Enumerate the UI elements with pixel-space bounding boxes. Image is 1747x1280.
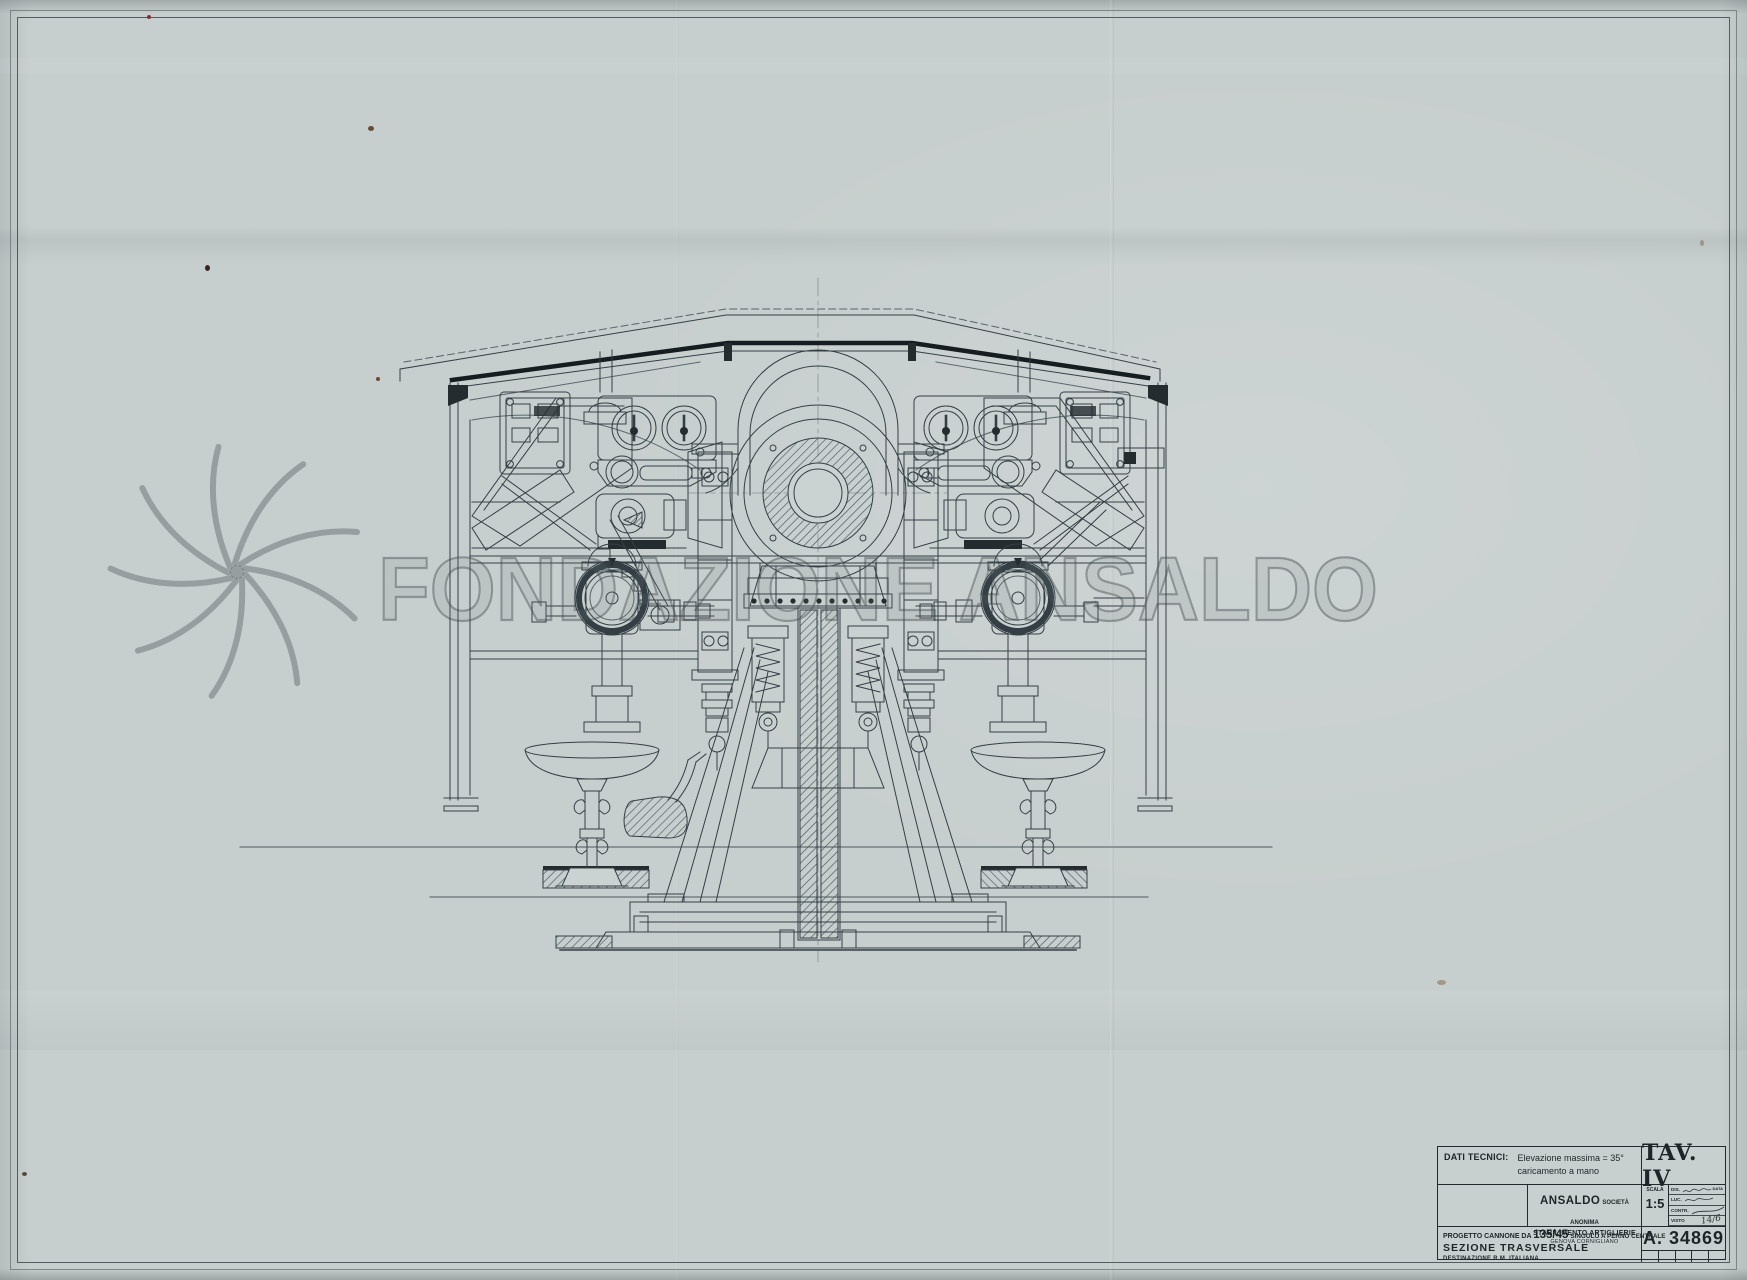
technical-drawing: FONDAZIONE ANSALDO xyxy=(0,0,1747,1280)
signature-scribble xyxy=(1684,1196,1714,1204)
approval-cell: DATA DIS. LUC. CONTR. VISTO 14/6 xyxy=(1669,1185,1725,1226)
drawing-number-subcells xyxy=(1642,1250,1725,1262)
tav-number: TAV. IV xyxy=(1642,1147,1725,1184)
spring-stack-left xyxy=(748,626,788,748)
dati-tecnici-cell: DATI TECNICI: Elevazione massima = 35° c… xyxy=(1438,1147,1642,1184)
dati-line-1: Elevazione massima = 35° xyxy=(1517,1152,1623,1165)
title-block-row-project: PROGETTO CANNONE DA 135/45 SINGOLO A PER… xyxy=(1438,1227,1725,1262)
signature-scribble xyxy=(1682,1186,1712,1194)
watermark-text: FONDAZIONE ANSALDO xyxy=(378,540,1378,640)
gunner-seat-right xyxy=(971,742,1105,888)
drawing-number-cell: A. 34869 xyxy=(1642,1227,1725,1262)
approval-row-luc: LUC. xyxy=(1669,1195,1725,1205)
approval-data-header: DATA xyxy=(1712,1186,1723,1191)
foot-pedal xyxy=(624,752,706,838)
company-name: ANSALDO xyxy=(1540,1195,1600,1207)
company-line-1: ANSALDOSOCIETÀ ANONIMA xyxy=(1528,1190,1641,1230)
ansaldo-star-logo xyxy=(110,447,357,697)
dati-line-2: caricamento a mano xyxy=(1517,1165,1623,1178)
deck-lines xyxy=(240,847,1272,950)
caliber: 135/45 xyxy=(1533,1229,1568,1241)
project-line-3: DESTINAZIONE R.M. ITALIANA xyxy=(1443,1256,1641,1263)
scala-cell: SCALA 1:5 xyxy=(1642,1185,1669,1226)
scala-label: SCALA xyxy=(1642,1187,1668,1193)
spring-stack-right xyxy=(848,626,888,748)
project-line-2: SEZIONE TRASVERSALE xyxy=(1443,1243,1641,1255)
blueprint-sheet: FONDAZIONE ANSALDO DATI TECNICI: Elevazi… xyxy=(0,0,1747,1280)
gun-shield-roof xyxy=(400,309,1160,400)
drawing-number: A. 34869 xyxy=(1642,1227,1725,1250)
project-line-1: PROGETTO CANNONE DA 135/45 SINGOLO A PER… xyxy=(1443,1229,1641,1242)
dati-tecnici-label: DATI TECNICI: xyxy=(1444,1152,1508,1184)
title-block-row-dati: DATI TECNICI: Elevazione massima = 35° c… xyxy=(1438,1147,1725,1185)
scala-value: 1:5 xyxy=(1642,1196,1668,1211)
company-cell: ANSALDOSOCIETÀ ANONIMA STABILIMENTO ARTI… xyxy=(1528,1185,1642,1226)
empty-cell xyxy=(1438,1185,1528,1226)
project-cell: PROGETTO CANNONE DA 135/45 SINGOLO A PER… xyxy=(1438,1227,1642,1262)
title-block-row-company: ANSALDOSOCIETÀ ANONIMA STABILIMENTO ARTI… xyxy=(1438,1185,1725,1227)
title-block: DATI TECNICI: Elevazione massima = 35° c… xyxy=(1437,1146,1726,1260)
dati-tecnici-lines: Elevazione massima = 35° caricamento a m… xyxy=(1517,1152,1623,1184)
